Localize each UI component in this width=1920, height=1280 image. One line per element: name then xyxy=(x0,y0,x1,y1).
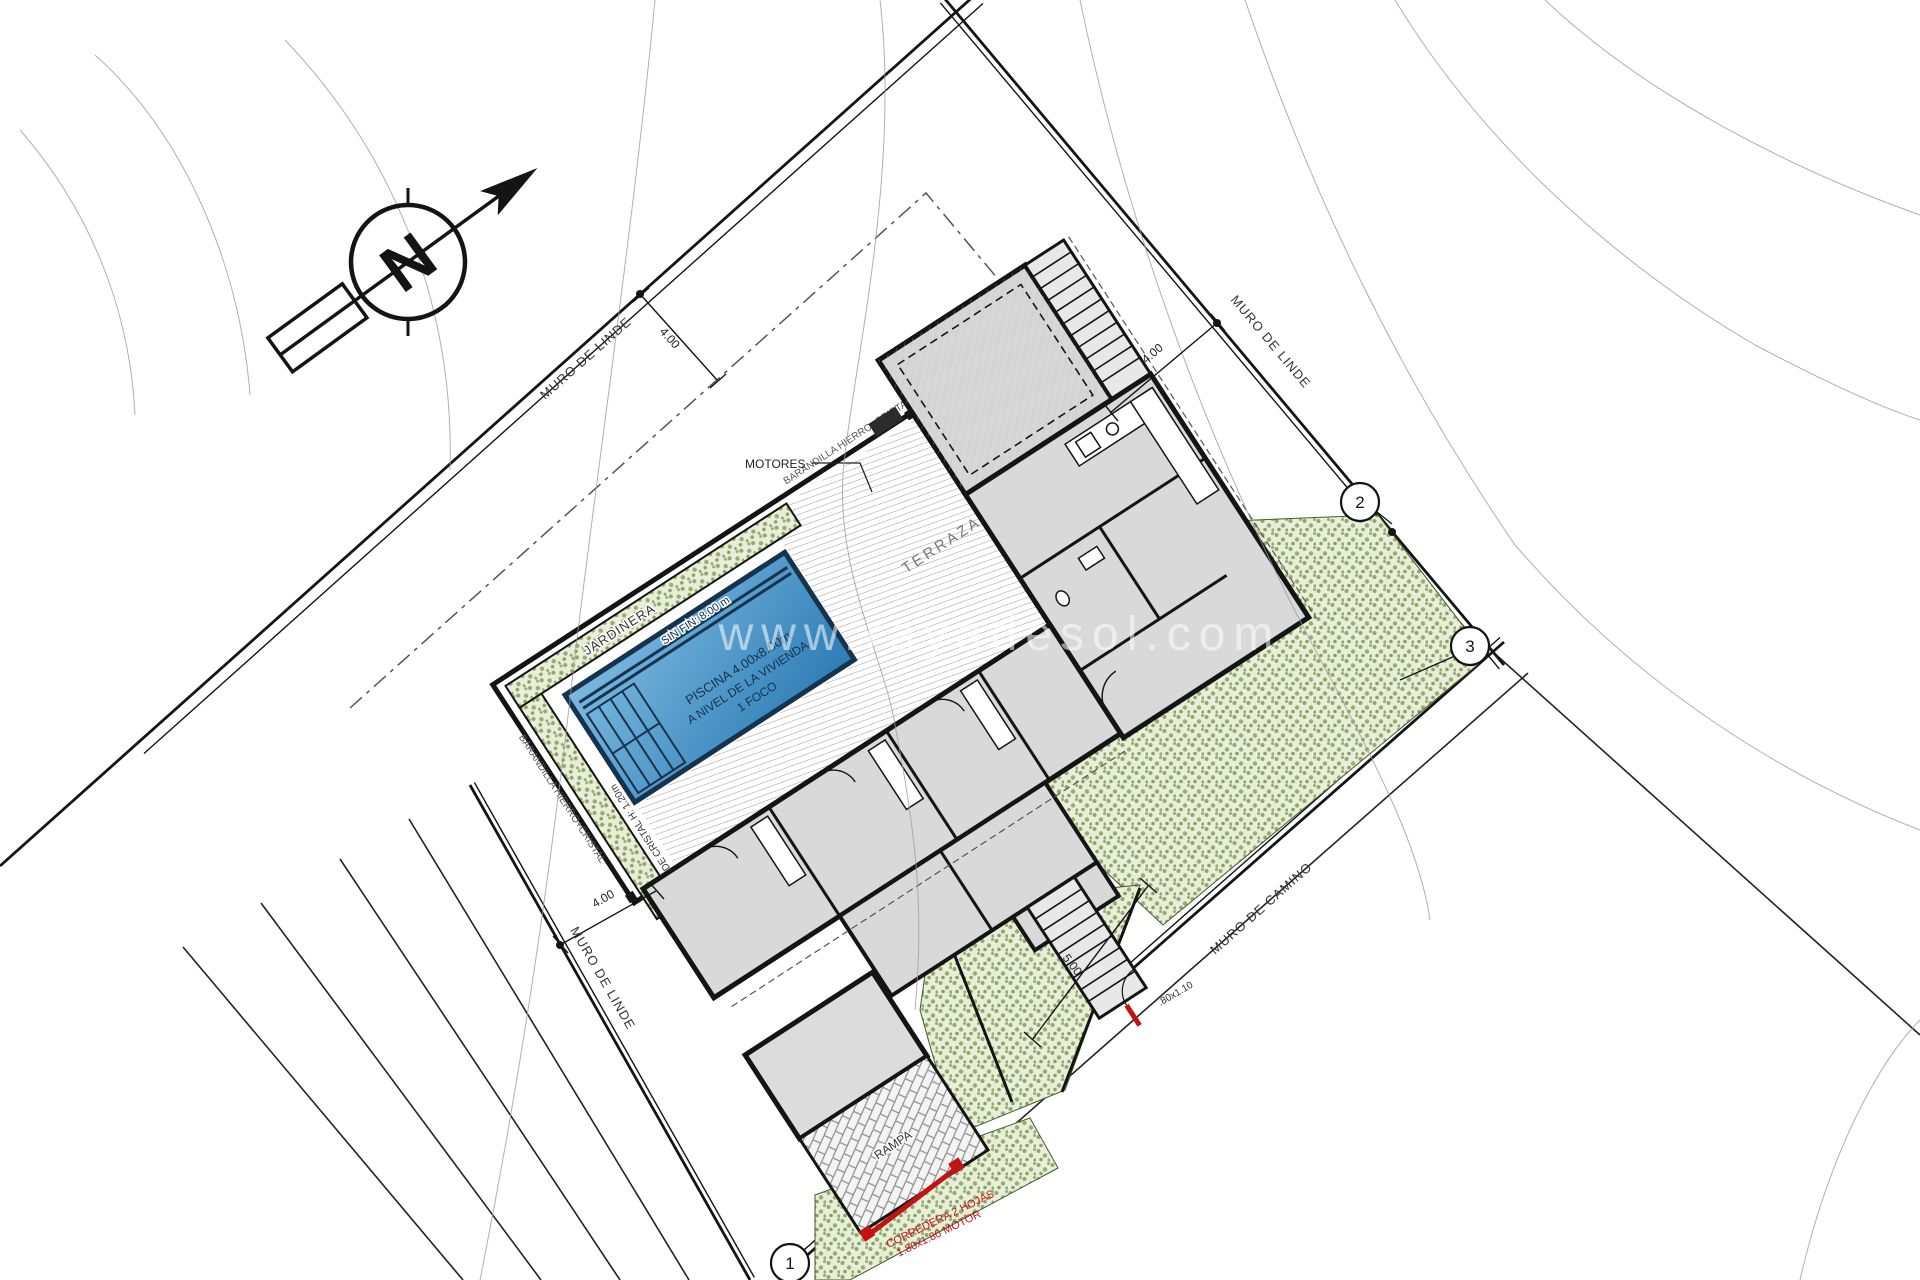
marker-1: 1 xyxy=(785,1254,794,1273)
site-plan-drawing: JARDINERA SIN FIN: 8.00 m PISCINA 4.00x8… xyxy=(0,0,1920,1280)
motores-label: MOTORES xyxy=(745,457,805,471)
site-plan-canvas: JARDINERA SIN FIN: 8.00 m PISCINA 4.00x8… xyxy=(0,0,1920,1280)
marker-3: 3 xyxy=(1465,637,1474,656)
marker-2: 2 xyxy=(1355,493,1364,512)
watermark: www.rayadesol.com xyxy=(718,608,1282,661)
